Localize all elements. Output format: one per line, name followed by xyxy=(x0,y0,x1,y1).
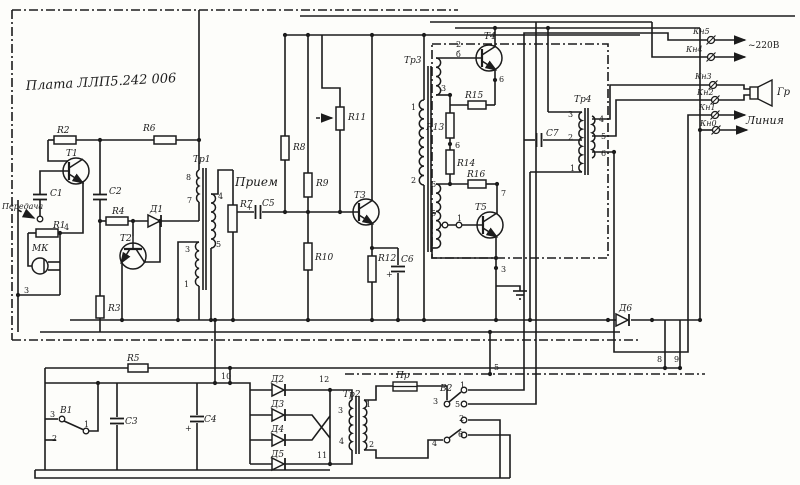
junction-dot xyxy=(494,266,498,270)
label: 1 xyxy=(460,381,465,390)
junction-dot xyxy=(306,210,310,214)
label: 10 xyxy=(221,372,231,381)
resistor-R5 xyxy=(128,364,148,372)
label: Прием xyxy=(234,175,278,189)
resistor-R3 xyxy=(96,296,104,318)
junction-dot xyxy=(231,318,235,322)
label: Тр1 xyxy=(193,155,211,165)
junction-dot xyxy=(422,318,426,322)
label: Д6 xyxy=(618,304,632,314)
label: 2 xyxy=(459,414,464,423)
label: 8 xyxy=(657,355,662,364)
label: + xyxy=(185,424,192,433)
label: R8 xyxy=(292,143,306,153)
label: Д2 xyxy=(270,375,284,385)
label: 4 xyxy=(64,223,69,232)
label: 1 xyxy=(184,280,189,289)
microphone-icon xyxy=(32,258,48,274)
resistor-R14 xyxy=(446,150,454,174)
junction-dot xyxy=(494,256,498,260)
label: + xyxy=(246,203,253,212)
label: 6 xyxy=(455,141,460,150)
label: 6 xyxy=(499,75,504,84)
label: Кн1 xyxy=(698,103,716,112)
junction-dot xyxy=(494,318,498,322)
label: 3 xyxy=(185,245,190,254)
label: 1 xyxy=(84,420,89,429)
junction-dot xyxy=(493,78,497,82)
label: В2 xyxy=(439,384,453,394)
label: R9 xyxy=(315,179,329,189)
resistor-R12 xyxy=(368,256,376,282)
junction-dot xyxy=(228,366,232,370)
label: С7 xyxy=(546,129,559,139)
label: 5 xyxy=(455,400,460,409)
label: 3 xyxy=(50,410,55,419)
label: Д3 xyxy=(270,400,284,410)
label: R12 xyxy=(377,254,397,264)
junction-dot xyxy=(650,318,654,322)
junction-dot xyxy=(396,318,400,322)
junction-dot xyxy=(546,26,550,30)
label: 12 xyxy=(319,375,329,384)
junction-dot xyxy=(131,219,135,223)
terminal-ring xyxy=(444,437,450,443)
resistor-R6 xyxy=(154,136,176,144)
junction-dot xyxy=(158,219,162,223)
junction-dot xyxy=(197,138,201,142)
junction-dot xyxy=(528,318,532,322)
schematic-canvas: Плата ЛЛП5.242 006R2R6Т1С1ПередачаR14МК3… xyxy=(0,0,800,485)
label: 5 xyxy=(601,132,606,141)
label: Линия xyxy=(745,114,784,127)
label: 8 xyxy=(186,173,191,182)
label: 2 xyxy=(52,434,57,443)
label: С4 xyxy=(204,415,217,425)
junction-dot xyxy=(306,318,310,322)
label: Д4 xyxy=(270,425,284,435)
label: Д5 xyxy=(270,450,284,460)
label: С2 xyxy=(109,187,122,197)
junction-dot xyxy=(370,33,374,37)
label: С5 xyxy=(262,199,275,209)
label: 3 xyxy=(501,265,506,274)
terminal-ring xyxy=(83,428,89,434)
label: 5 xyxy=(216,240,221,249)
label: С6 xyxy=(401,255,414,265)
label: Т3 xyxy=(354,191,366,201)
label: 1 xyxy=(570,164,575,173)
label: 6 xyxy=(601,149,606,158)
label: 11 xyxy=(317,451,327,460)
resistor-R2 xyxy=(54,136,76,144)
label: 2 xyxy=(411,176,416,185)
label: R14 xyxy=(456,159,476,169)
junction-dot xyxy=(338,210,342,214)
label: 4 xyxy=(339,437,344,446)
label: В1 xyxy=(59,406,72,416)
label: 7 xyxy=(501,189,506,198)
label: 6 xyxy=(458,430,463,439)
label: R16 xyxy=(466,170,486,180)
resistor-R13 xyxy=(446,113,454,138)
scanned-schematic-page: Плата ЛЛП5.242 006 Плата ЛЛП5.242 006R2R… xyxy=(0,0,800,485)
junction-dot xyxy=(176,318,180,322)
junction-dot xyxy=(495,182,499,186)
label: Тр4 xyxy=(574,95,592,105)
label: 7 xyxy=(187,196,192,205)
junction-dot xyxy=(213,318,217,322)
label: R4 xyxy=(111,207,125,217)
label: МК xyxy=(31,244,49,254)
label: Т4 xyxy=(484,32,496,42)
label: Д1 xyxy=(149,205,163,215)
label: Тр3 xyxy=(404,56,422,66)
resistor-R8 xyxy=(281,136,289,160)
label: R13 xyxy=(425,123,445,133)
junction-dot xyxy=(448,93,452,97)
junction-dot xyxy=(120,318,124,322)
junction-dot xyxy=(698,128,702,132)
label: 9 xyxy=(674,355,679,364)
label: Т1 xyxy=(66,149,78,159)
junction-dot xyxy=(698,318,702,322)
label: 1 xyxy=(366,400,371,409)
junction-dot xyxy=(283,210,287,214)
label: R10 xyxy=(314,253,334,263)
terminal-ring xyxy=(461,401,467,407)
resistor-R16 xyxy=(468,180,486,188)
label: 3 xyxy=(338,406,343,415)
junction-dot xyxy=(328,388,332,392)
label: Кн3 xyxy=(694,72,712,81)
junction-dot xyxy=(98,219,102,223)
label: R2 xyxy=(56,126,70,136)
resistor-R15 xyxy=(468,101,486,109)
junction-dot xyxy=(448,182,452,186)
junction-dot xyxy=(306,33,310,37)
junction-dot xyxy=(448,142,452,146)
terminal-ring xyxy=(37,216,43,222)
label: 2 xyxy=(369,440,374,449)
junction-dot xyxy=(98,138,102,142)
terminal-ring xyxy=(59,416,65,422)
label: + xyxy=(386,270,393,279)
resistor-R10 xyxy=(304,243,312,270)
junction-dot xyxy=(228,381,232,385)
junction-dot xyxy=(16,293,20,297)
junction-dot xyxy=(283,33,287,37)
label: 3 xyxy=(568,110,573,119)
label: 2 xyxy=(456,40,461,49)
label: 1 xyxy=(457,214,462,223)
junction-dot xyxy=(612,150,616,154)
junction-dot xyxy=(488,372,492,376)
terminal-ring xyxy=(444,401,450,407)
label: 4 xyxy=(599,115,604,124)
label: 4 xyxy=(432,439,437,448)
label: 1 xyxy=(411,103,416,112)
terminal-ring xyxy=(456,222,462,228)
label: 6 xyxy=(431,180,436,189)
label: Кн4 xyxy=(685,45,703,54)
label: 2 xyxy=(568,133,573,142)
junction-dot xyxy=(209,318,213,322)
resistor-R9 xyxy=(304,173,312,197)
junction-dot xyxy=(328,462,332,466)
junction-dot xyxy=(370,246,374,250)
label: ~220В xyxy=(748,41,780,51)
label: Кн0 xyxy=(699,119,717,128)
terminal-ring xyxy=(442,222,448,228)
junction-dot xyxy=(663,366,667,370)
label: Тр2 xyxy=(343,390,361,400)
label: Кн5 xyxy=(692,27,710,36)
label: 4 xyxy=(218,192,223,201)
junction-dot xyxy=(606,318,610,322)
label: R15 xyxy=(464,91,484,101)
junction-dot xyxy=(678,366,682,370)
label: Пр xyxy=(395,371,410,381)
label: 5 xyxy=(431,209,436,218)
label: С3 xyxy=(125,417,138,427)
label: R3 xyxy=(107,304,121,314)
resistor-R4 xyxy=(106,217,128,225)
resistor-R11 xyxy=(336,107,344,130)
junction-dot xyxy=(493,26,497,30)
label: Кн2 xyxy=(696,88,714,97)
label: С1 xyxy=(50,189,63,199)
label: 5 xyxy=(494,363,499,372)
junction-dot xyxy=(96,381,100,385)
label: Передача xyxy=(1,202,43,211)
label: R6 xyxy=(142,124,156,134)
resistor-R7 xyxy=(228,205,237,232)
junction-dot xyxy=(488,330,492,334)
junction-dot xyxy=(213,381,217,385)
label: 3 xyxy=(441,84,446,93)
label: R11 xyxy=(347,113,366,123)
label: б xyxy=(456,50,461,59)
junction-dot xyxy=(370,318,374,322)
label: 3 xyxy=(24,286,29,295)
junction-dot xyxy=(422,33,426,37)
label: Гр xyxy=(776,87,791,98)
speaker-icon xyxy=(750,87,758,99)
label: R5 xyxy=(126,354,140,364)
label: 3 xyxy=(433,397,438,406)
label: Т5 xyxy=(475,203,487,213)
label: Т2 xyxy=(120,234,132,244)
junction-dot xyxy=(58,231,62,235)
